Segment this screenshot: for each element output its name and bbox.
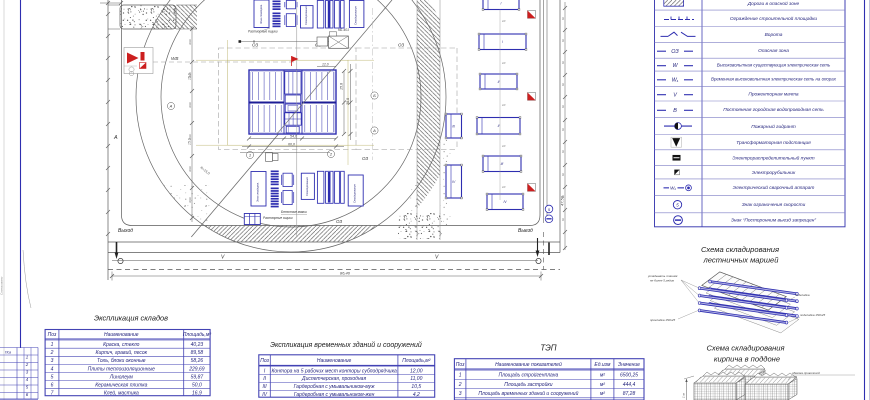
svg-text:Зона складиров.: Зона складиров.: [259, 4, 263, 24]
svg-text:10: 10: [502, 19, 506, 23]
svg-text:Керамическая плитка: Керамическая плитка: [95, 383, 147, 389]
svg-text:кирпича в поддоне: кирпича в поддоне: [714, 355, 780, 364]
svg-text:3000: 3000: [188, 197, 192, 203]
svg-text:Ограждение строительной площад: Ограждение строительной площадки: [730, 15, 817, 22]
svg-text:Прожекторная мачта: Прожекторная мачта: [748, 92, 799, 98]
svg-text:12,0: 12,0: [322, 62, 329, 66]
svg-text:Выезд: Выезд: [518, 228, 533, 234]
svg-text:40,23: 40,23: [191, 342, 204, 348]
svg-text:ТЭП: ТЭП: [540, 344, 556, 353]
svg-text:ОЗ: ОЗ: [336, 219, 342, 224]
svg-text:Складирование: Складирование: [305, 177, 309, 196]
svg-text:м²: м²: [600, 382, 605, 388]
svg-text:60,0: 60,0: [288, 143, 295, 147]
svg-text:укладывать плашмя: укладывать плашмя: [647, 274, 678, 278]
svg-text:Толь, блоки оконные: Толь, блоки оконные: [97, 358, 146, 364]
svg-text:2: 2: [458, 382, 462, 388]
svg-text:Наименование: Наименование: [317, 358, 352, 364]
svg-text:Трансформаторная подстанция: Трансформаторная подстанция: [736, 140, 811, 146]
svg-text:Опасная зона: Опасная зона: [758, 48, 789, 54]
svg-text:11,00: 11,00: [410, 376, 422, 382]
svg-text:W₁: W₁: [670, 186, 676, 191]
svg-text:Диспетчерская, проходная: Диспетчерская, проходная: [301, 376, 366, 382]
svg-text:ОЗ: ОЗ: [252, 42, 258, 47]
svg-text:Бетонные маяки: Бетонные маяки: [281, 210, 307, 214]
svg-text:1: 1: [51, 342, 54, 348]
svg-text:Линолеум: Линолеум: [109, 374, 134, 380]
svg-text:Поз: Поз: [5, 350, 12, 354]
svg-text:I: I: [501, 2, 502, 6]
svg-text:IV: IV: [262, 392, 267, 398]
svg-text:I: I: [502, 40, 503, 44]
svg-text:Гардеробная с умывальником-муж: Гардеробная с умывальником-муж: [294, 384, 375, 390]
svg-text:W₁: W₁: [672, 77, 679, 83]
svg-text:подкладка 150х25: подкладка 150х25: [800, 313, 826, 317]
svg-text:Б: Б: [373, 93, 376, 98]
svg-text:10,5: 10,5: [411, 384, 421, 390]
svg-text:Высоковольтная существующая эл: Высоковольтная существующая электрическа…: [717, 63, 831, 68]
svg-text:3: 3: [459, 391, 462, 397]
svg-text:А: А: [372, 128, 376, 133]
svg-text:3000: 3000: [188, 134, 192, 140]
svg-text:Схема складирования: Схема складирования: [706, 344, 784, 353]
svg-text:Ворота: Ворота: [765, 32, 783, 38]
svg-text:Краска, стекло: Краска, стекло: [103, 342, 140, 348]
svg-text:м²: м²: [600, 391, 605, 397]
svg-text:Экспликация складов: Экспликация складов: [94, 314, 168, 323]
svg-text:12,00: 12,00: [410, 368, 423, 374]
svg-text:444,4: 444,4: [623, 382, 636, 388]
svg-text:229,69: 229,69: [188, 366, 205, 372]
svg-text:10: 10: [502, 144, 506, 148]
svg-text:Электрический сварочный аппара: Электрический сварочный аппарат: [733, 184, 815, 191]
svg-text:Площадь,м²: Площадь,м²: [402, 358, 431, 364]
svg-text:Ед.изм: Ед.изм: [594, 362, 611, 368]
svg-text:3000: 3000: [188, 166, 192, 172]
svg-text:II: II: [498, 124, 500, 128]
svg-text:Плиты теплоизоляционные: Плиты теплоизоляционные: [88, 366, 156, 372]
svg-text:Складирование: Складирование: [353, 184, 357, 203]
svg-text:WВ: WВ: [171, 56, 178, 61]
svg-text:5: 5: [51, 374, 54, 380]
svg-text:ОЗ: ОЗ: [362, 156, 368, 161]
svg-text:6500,25: 6500,25: [620, 373, 638, 379]
svg-text:Согласовано: Согласовано: [0, 276, 4, 295]
svg-text:50,0: 50,0: [192, 383, 202, 389]
svg-text:Знак ограничения скорости: Знак ограничения скорости: [742, 202, 806, 208]
svg-text:6: 6: [51, 383, 54, 389]
svg-text:Кирпич, гравий, песок: Кирпич, гравий, песок: [96, 349, 148, 356]
svg-text:4,2: 4,2: [413, 392, 420, 398]
svg-text:10: 10: [502, 185, 506, 189]
svg-text:Экспликация временных зданий и: Экспликация временных зданий и сооружени…: [270, 341, 422, 349]
svg-text:Пожарный гидрант: Пожарный гидрант: [751, 123, 796, 130]
svg-text:10: 10: [502, 103, 506, 107]
svg-text:Дороги в опасной зоне: Дороги в опасной зоне: [747, 0, 800, 7]
svg-text:2: 2: [25, 362, 29, 367]
svg-text:Складирование: Складирование: [354, 6, 358, 25]
svg-text:54,0: 54,0: [290, 135, 297, 139]
svg-text:3000: 3000: [188, 72, 192, 78]
svg-text:Схема складирования: Схема складирования: [701, 245, 779, 254]
svg-text:Площадь стройгенплана: Площадь стройгенплана: [498, 372, 558, 379]
svg-text:2: 2: [50, 350, 54, 356]
svg-text:Растворные ящики: Растворные ящики: [248, 30, 278, 34]
svg-text:III: III: [263, 384, 268, 390]
svg-text:30,0: 30,0: [346, 98, 350, 105]
svg-text:ОЗ: ОЗ: [398, 43, 404, 48]
svg-text:III: III: [452, 124, 455, 128]
svg-text:59,87: 59,87: [191, 374, 204, 380]
svg-text:Складирование: Складирование: [304, 6, 308, 25]
svg-text:II: II: [498, 80, 500, 84]
svg-text:Клей, мастика: Клей, мастика: [104, 390, 139, 397]
svg-text:Наименование: Наименование: [104, 332, 139, 338]
svg-text:7: 7: [51, 391, 54, 397]
svg-text:III: III: [501, 162, 504, 166]
svg-text:Временная высоковольтная элект: Временная высоковольтная электрическая с…: [711, 77, 837, 82]
svg-text:Зона складиров.: Зона складиров.: [256, 182, 260, 202]
svg-text:15,0: 15,0: [340, 83, 344, 90]
svg-text:Значение: Значение: [618, 362, 640, 368]
svg-text:КБ-401: КБ-401: [338, 28, 349, 32]
svg-text:прокладка 150х25: прокладка 150х25: [650, 318, 676, 322]
svg-text:Поз: Поз: [260, 358, 269, 364]
svg-text:Электрорубильник: Электрорубильник: [752, 170, 796, 176]
svg-text:58,26: 58,26: [191, 358, 204, 364]
svg-text:1 м: 1 м: [682, 393, 686, 398]
svg-text:86,40: 86,40: [340, 271, 351, 276]
svg-text:Площадь,м²: Площадь,м²: [183, 332, 212, 338]
svg-text:В: В: [673, 108, 677, 114]
svg-text:А: А: [169, 104, 173, 109]
svg-text:89,58: 89,58: [191, 350, 204, 356]
svg-text:Поз: Поз: [48, 332, 57, 338]
svg-text:3000: 3000: [188, 102, 192, 108]
svg-text:не более 5 рядов: не более 5 рядов: [650, 279, 674, 283]
svg-text:10: 10: [502, 61, 506, 65]
svg-text:Электрораспределительный пункт: Электрораспределительный пункт: [732, 155, 814, 162]
svg-text:ОЗ: ОЗ: [671, 49, 679, 55]
svg-text:обвязка проволокой: обвязка проволокой: [792, 371, 820, 375]
svg-text:Постоянная городская водопрово: Постоянная городская водопроводная сеть: [723, 107, 824, 113]
svg-text:лестничных маршей: лестничных маршей: [703, 256, 780, 265]
svg-text:Знак “Посторонним выезд запрещ: Знак “Посторонним выезд запрещен”: [731, 218, 816, 224]
svg-text:Наименование показателей: Наименование показателей: [495, 361, 562, 368]
svg-text:м²: м²: [600, 373, 605, 379]
svg-text:Контора на 5 рабочих мест конт: Контора на 5 рабочих мест конторы субпод…: [271, 368, 396, 374]
svg-text:Площадь временных зданий и соо: Площадь временных зданий и сооружений: [478, 390, 578, 397]
svg-text:3000: 3000: [188, 39, 192, 45]
svg-text:подкладка: подкладка: [795, 293, 810, 297]
svg-text:4: 4: [51, 366, 54, 372]
svg-text:Поз: Поз: [456, 362, 465, 368]
svg-text:87,28: 87,28: [623, 391, 636, 397]
svg-text:Гардеробная с умывальником-жен: Гардеробная с умывальником-жен: [294, 392, 375, 398]
svg-text:3: 3: [51, 358, 54, 364]
svg-text:16,9: 16,9: [192, 391, 202, 397]
svg-text:А: А: [113, 135, 118, 141]
svg-text:1: 1: [249, 153, 251, 158]
svg-text:Выход: Выход: [118, 228, 133, 234]
svg-text:Площадь застройки: Площадь застройки: [504, 381, 552, 388]
svg-text:Растворные ящики: Растворные ящики: [263, 216, 293, 220]
svg-text:1: 1: [459, 373, 462, 379]
